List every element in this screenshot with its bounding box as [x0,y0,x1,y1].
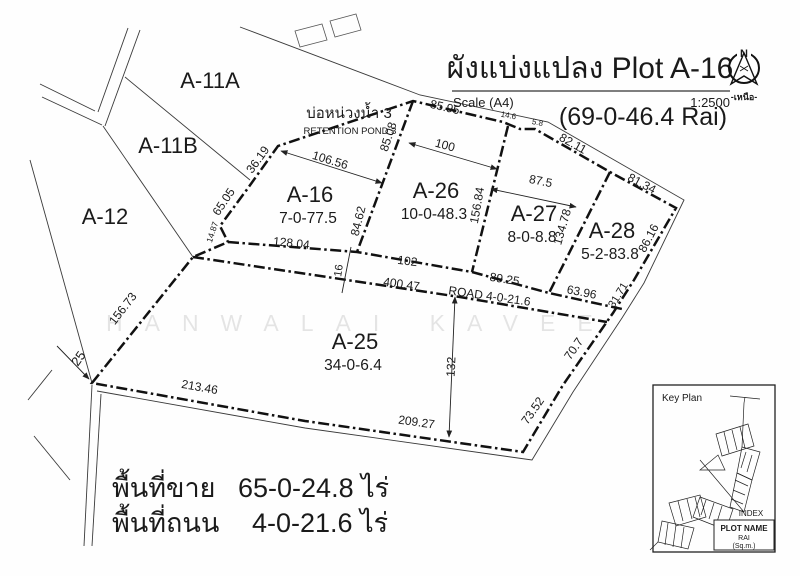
dimension-label: 89.25 [489,270,521,289]
parcel-label-a-25: A-25 [332,329,378,354]
parcel-area-a-16: 7-0-77.5 [279,210,337,227]
key-plan-box-line-1: PLOT NAME [720,524,768,533]
key-plan-box-line-2: RAI [738,535,750,542]
total-area-label: (69-0-46.4 Rai) [559,103,727,131]
dimension-label: 400.47 [382,275,421,294]
key-plan-box-line-3: (Sq.m.) [733,543,756,550]
dimension-label: 128.04 [272,234,310,252]
key-plan: Key Plan INDEX PLOT NAME RAI (Sq.m.) [650,385,775,552]
dimension-label: 82.11 [557,130,590,157]
key-plan-index-label: INDEX [739,509,764,518]
north-arrow-icon: N -เหนือ- [729,46,759,102]
dimension-label: ROAD 4-0-21.6 [448,283,532,308]
parcel-label-a-12: A-12 [82,204,128,229]
dimension-label: 209.27 [397,413,436,432]
parcel-label-a-11b: A-11B [138,133,198,158]
parcel-area-a-26: 10-0-48.3 [401,206,467,223]
plot-map-svg: HANWALAI KAVEE ผังแบ่งแปลง Pl [0,0,800,576]
neighbor-lines [28,14,684,546]
parcel-label-a-28: A-28 [589,218,635,243]
parcel-area-a-27: 8-0-8.8 [507,229,556,246]
scale-label: Scale (A4) [453,95,514,110]
dimension-label: 81.34 [625,170,658,197]
survey-map-page: HANWALAI KAVEE ผังแบ่งแปลง Pl [0,0,800,576]
dimension-label: 14.6 [500,110,517,122]
parcel-label-a-11a: A-11A [180,68,240,93]
parcel-area-a-28: 5-2-83.8 [581,246,639,263]
dimension-label: 14.87 [204,220,220,244]
dimension-label: 5.8 [531,117,544,128]
dimension-label: 213.46 [180,377,219,397]
road-north-edge [228,242,622,309]
key-plan-title: Key Plan [662,393,702,404]
page-title: ผังแบ่งแปลง Plot A-16 [447,52,734,85]
dimension-label: 132 [443,356,458,377]
dimension-label: 31.71 [606,281,631,311]
sale-area-label: พื้นที่ขาย [112,468,216,503]
parcel-label-a-16: A-16 [287,182,333,207]
road-area-value: 4-0-21.6 ไร่ [252,508,388,538]
dimension-label: 73.52 [518,394,547,427]
parcel-area-a-25: 34-0-6.4 [324,357,382,374]
pond-thai-label: บ่อหน่วงน้ำ 3 [306,102,392,122]
area-summary: พื้นที่ขาย 65-0-24.8 ไร่ พื้นที่ถนน 4-0-… [112,468,389,538]
dimension-label: 16 [332,264,346,278]
dimension-label: 106.56 [311,148,351,172]
road-area-label: พื้นที่ถนน [112,503,219,538]
dimension-label: 156.84 [467,186,487,225]
dimension-label: 25 [68,348,89,368]
dimension-label: 87.5 [528,172,554,190]
parcel-label-a-27: A-27 [511,201,557,226]
dimension-label: 36.19 [243,143,272,176]
north-caption: -เหนือ- [731,91,758,102]
parcel-label-a-26: A-26 [413,178,459,203]
dimension-label: 102 [397,253,419,269]
dimension-label: 63.96 [566,282,598,302]
dimension-label: 65.05 [209,185,238,218]
sale-area-value: 65-0-24.8 ไร่ [238,473,389,503]
